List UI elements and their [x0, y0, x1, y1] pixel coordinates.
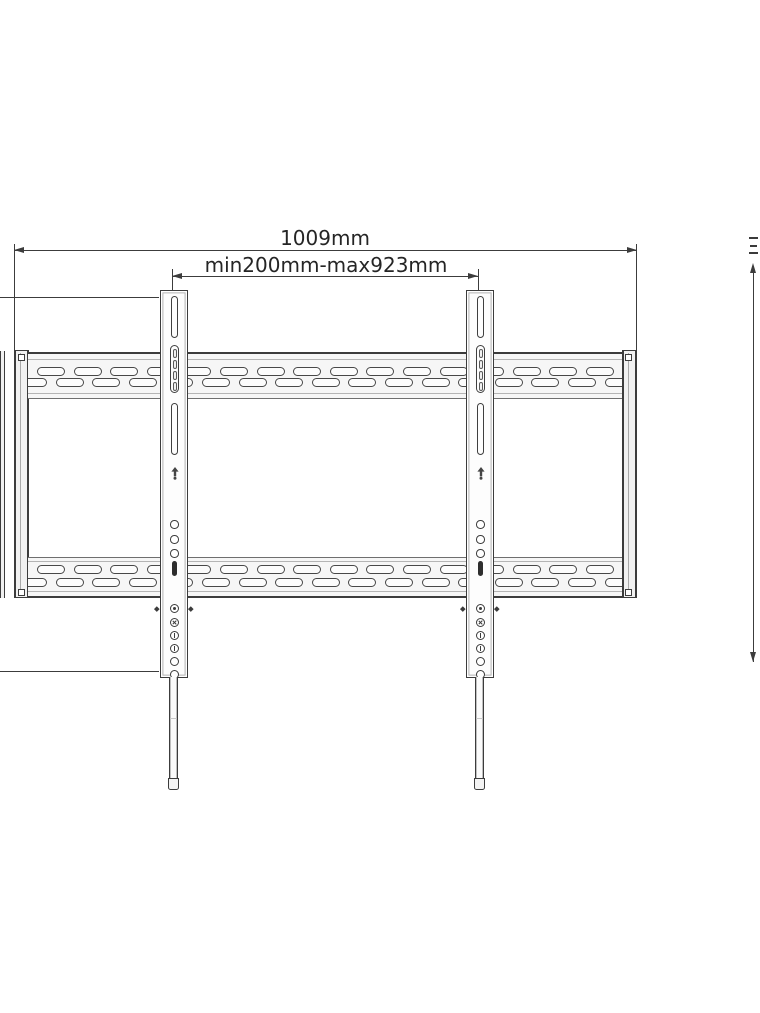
- rail-screw-hole: [170, 631, 179, 640]
- support-rod: [169, 677, 178, 778]
- rail-hole: [170, 535, 179, 544]
- rail-screw-hole: [476, 657, 485, 666]
- rail-hole: [476, 535, 485, 544]
- rail-lock-slot: [172, 561, 178, 576]
- screw-slot-mark: [174, 633, 175, 638]
- rail-screw-hole: [476, 631, 485, 640]
- rail-top-slot: [171, 296, 178, 338]
- tv-bracket-rail: [160, 290, 188, 678]
- side-tab-icon: [460, 606, 465, 611]
- ladder-rung-slot: [479, 360, 483, 369]
- rail-screw-hole: [170, 604, 179, 613]
- support-rod-endcap: [168, 778, 179, 790]
- rail-adjust-slot: [477, 403, 485, 455]
- screw-dot-mark: [479, 607, 482, 610]
- side-tab-icon: [494, 606, 499, 611]
- rail-ladder-slot: [476, 345, 486, 393]
- ladder-rung-slot: [479, 382, 483, 391]
- side-tab-icon: [154, 606, 159, 611]
- ladder-rung-slot: [173, 360, 177, 369]
- rail-screw-hole: [170, 618, 179, 627]
- rod-joint-line: [170, 718, 177, 719]
- rail-screw-hole: [476, 618, 485, 627]
- screw-slot-mark: [480, 646, 481, 651]
- rail-hole: [170, 549, 179, 558]
- screw-icon: [476, 465, 486, 478]
- screw-icon: [170, 465, 180, 478]
- screw-slot-mark: [480, 633, 481, 638]
- rail-screw-hole: [170, 657, 179, 666]
- rail-top-slot: [477, 296, 484, 338]
- side-tab-icon: [188, 606, 193, 611]
- rail-adjust-slot: [171, 403, 179, 455]
- rail-lock-slot: [478, 561, 484, 576]
- ladder-rung-slot: [173, 382, 177, 391]
- rail-screw-hole: [476, 604, 485, 613]
- rails-layer: [0, 0, 760, 1013]
- rod-joint-line: [476, 718, 483, 719]
- ladder-rung-slot: [479, 349, 483, 358]
- rail-ladder-slot: [170, 345, 180, 393]
- rail-screw-hole: [170, 644, 179, 653]
- rail-hole: [476, 520, 485, 529]
- ladder-rung-slot: [173, 371, 177, 380]
- ladder-rung-slot: [479, 371, 483, 380]
- rail-hole: [476, 549, 485, 558]
- rail-hole: [170, 520, 179, 529]
- screw-slot-mark: [174, 646, 175, 651]
- support-rod: [475, 677, 484, 778]
- wall-mount-technical-drawing: 1009mm min200mm-max923mm: [0, 0, 760, 1013]
- tv-bracket-rail: [466, 290, 494, 678]
- ladder-rung-slot: [173, 349, 177, 358]
- screw-dot-mark: [173, 607, 176, 610]
- rail-screw-hole: [476, 644, 485, 653]
- support-rod-endcap: [474, 778, 485, 790]
